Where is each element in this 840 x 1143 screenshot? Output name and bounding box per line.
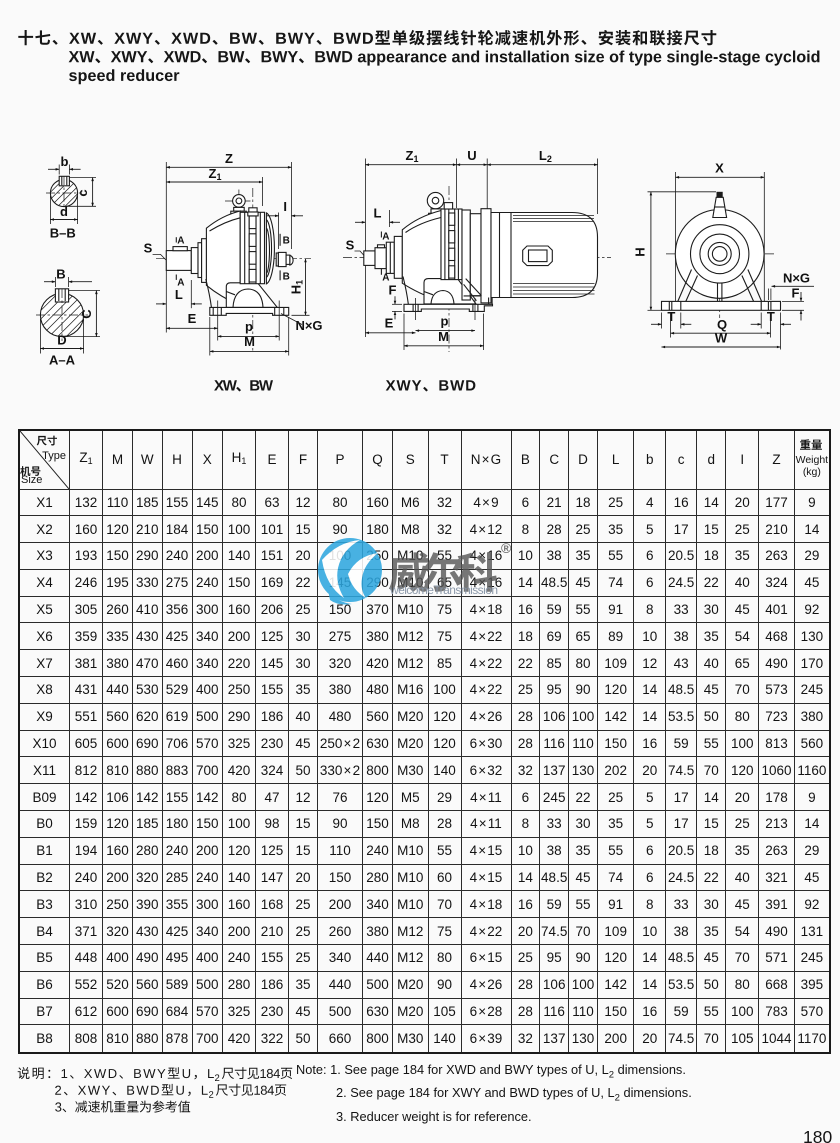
svg-text:c: c	[75, 189, 90, 196]
svg-text:Z1: Z1	[209, 166, 222, 182]
svg-text:N×G: N×G	[783, 271, 810, 286]
svg-text:d: d	[60, 204, 68, 219]
svg-text:T: T	[667, 309, 675, 324]
svg-text:L: L	[374, 206, 382, 221]
svg-text:B: B	[283, 235, 290, 246]
svg-text:E: E	[385, 315, 394, 330]
svg-text:S: S	[346, 238, 355, 253]
svg-text:M: M	[438, 329, 449, 344]
svg-text:B–B: B–B	[50, 226, 76, 241]
svg-text:E: E	[188, 311, 197, 326]
svg-text:Z: Z	[225, 151, 233, 166]
svg-text:B: B	[283, 271, 290, 282]
svg-text:®: ®	[501, 540, 512, 556]
svg-text:C: C	[79, 309, 94, 319]
svg-text:H1: H1	[289, 280, 305, 294]
svg-text:L: L	[175, 287, 183, 302]
svg-text:p: p	[245, 319, 253, 334]
svg-text:M: M	[244, 334, 255, 349]
svg-text:H: H	[633, 247, 648, 256]
svg-text:I: I	[283, 199, 287, 214]
svg-text:A–A: A–A	[49, 353, 76, 368]
svg-text:p: p	[441, 313, 449, 328]
svg-text:Z1: Z1	[406, 148, 419, 164]
svg-text:welcomeTransmission: welcomeTransmission	[389, 583, 498, 597]
svg-text:L2: L2	[539, 148, 552, 164]
svg-text:D: D	[57, 333, 66, 348]
svg-text:F: F	[792, 286, 800, 301]
svg-text:S: S	[144, 241, 153, 256]
svg-text:B: B	[56, 267, 65, 282]
svg-text:A: A	[177, 236, 184, 247]
svg-text:b: b	[61, 154, 69, 169]
svg-text:X: X	[715, 160, 724, 175]
svg-text:A: A	[382, 232, 389, 243]
svg-text:F: F	[389, 283, 397, 298]
svg-text:W: W	[715, 331, 728, 346]
svg-text:N×G: N×G	[295, 318, 322, 333]
svg-text:U: U	[467, 148, 476, 163]
